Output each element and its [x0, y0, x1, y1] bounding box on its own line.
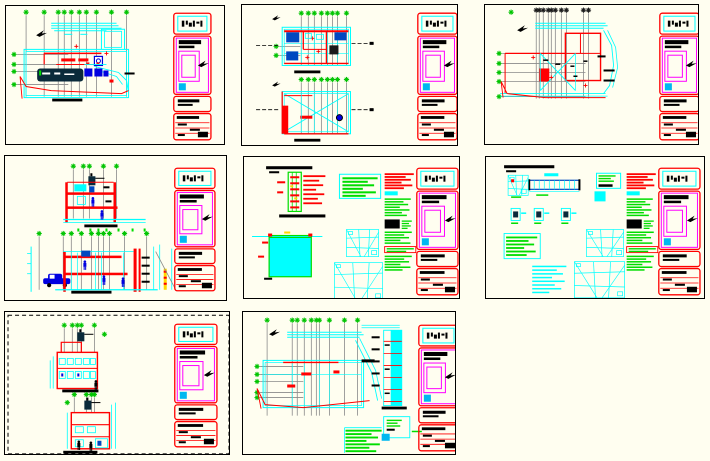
sheet-drawing	[6, 6, 224, 144]
sheet-upper-floor-plans[interactable]	[241, 4, 458, 146]
sheet-roof-plan[interactable]	[484, 4, 699, 145]
sheet-elevations[interactable]	[4, 311, 230, 455]
drawing-canvas	[0, 0, 710, 461]
sheet-drawing	[243, 312, 455, 454]
sheet-drawing	[485, 5, 698, 144]
sheet-details-tank[interactable]	[243, 156, 460, 299]
sheet-drawing	[486, 157, 704, 298]
sheet-details-beams[interactable]	[485, 156, 705, 299]
sheet-drawing	[5, 156, 226, 300]
sheet-drawing	[244, 157, 459, 298]
sheet-ground-floor-plan[interactable]	[5, 5, 225, 145]
sheet-drawing	[5, 312, 229, 454]
sheet-drawing	[242, 5, 457, 145]
sheet-building-sections[interactable]	[4, 155, 227, 301]
sheet-site-plan[interactable]	[242, 311, 456, 455]
